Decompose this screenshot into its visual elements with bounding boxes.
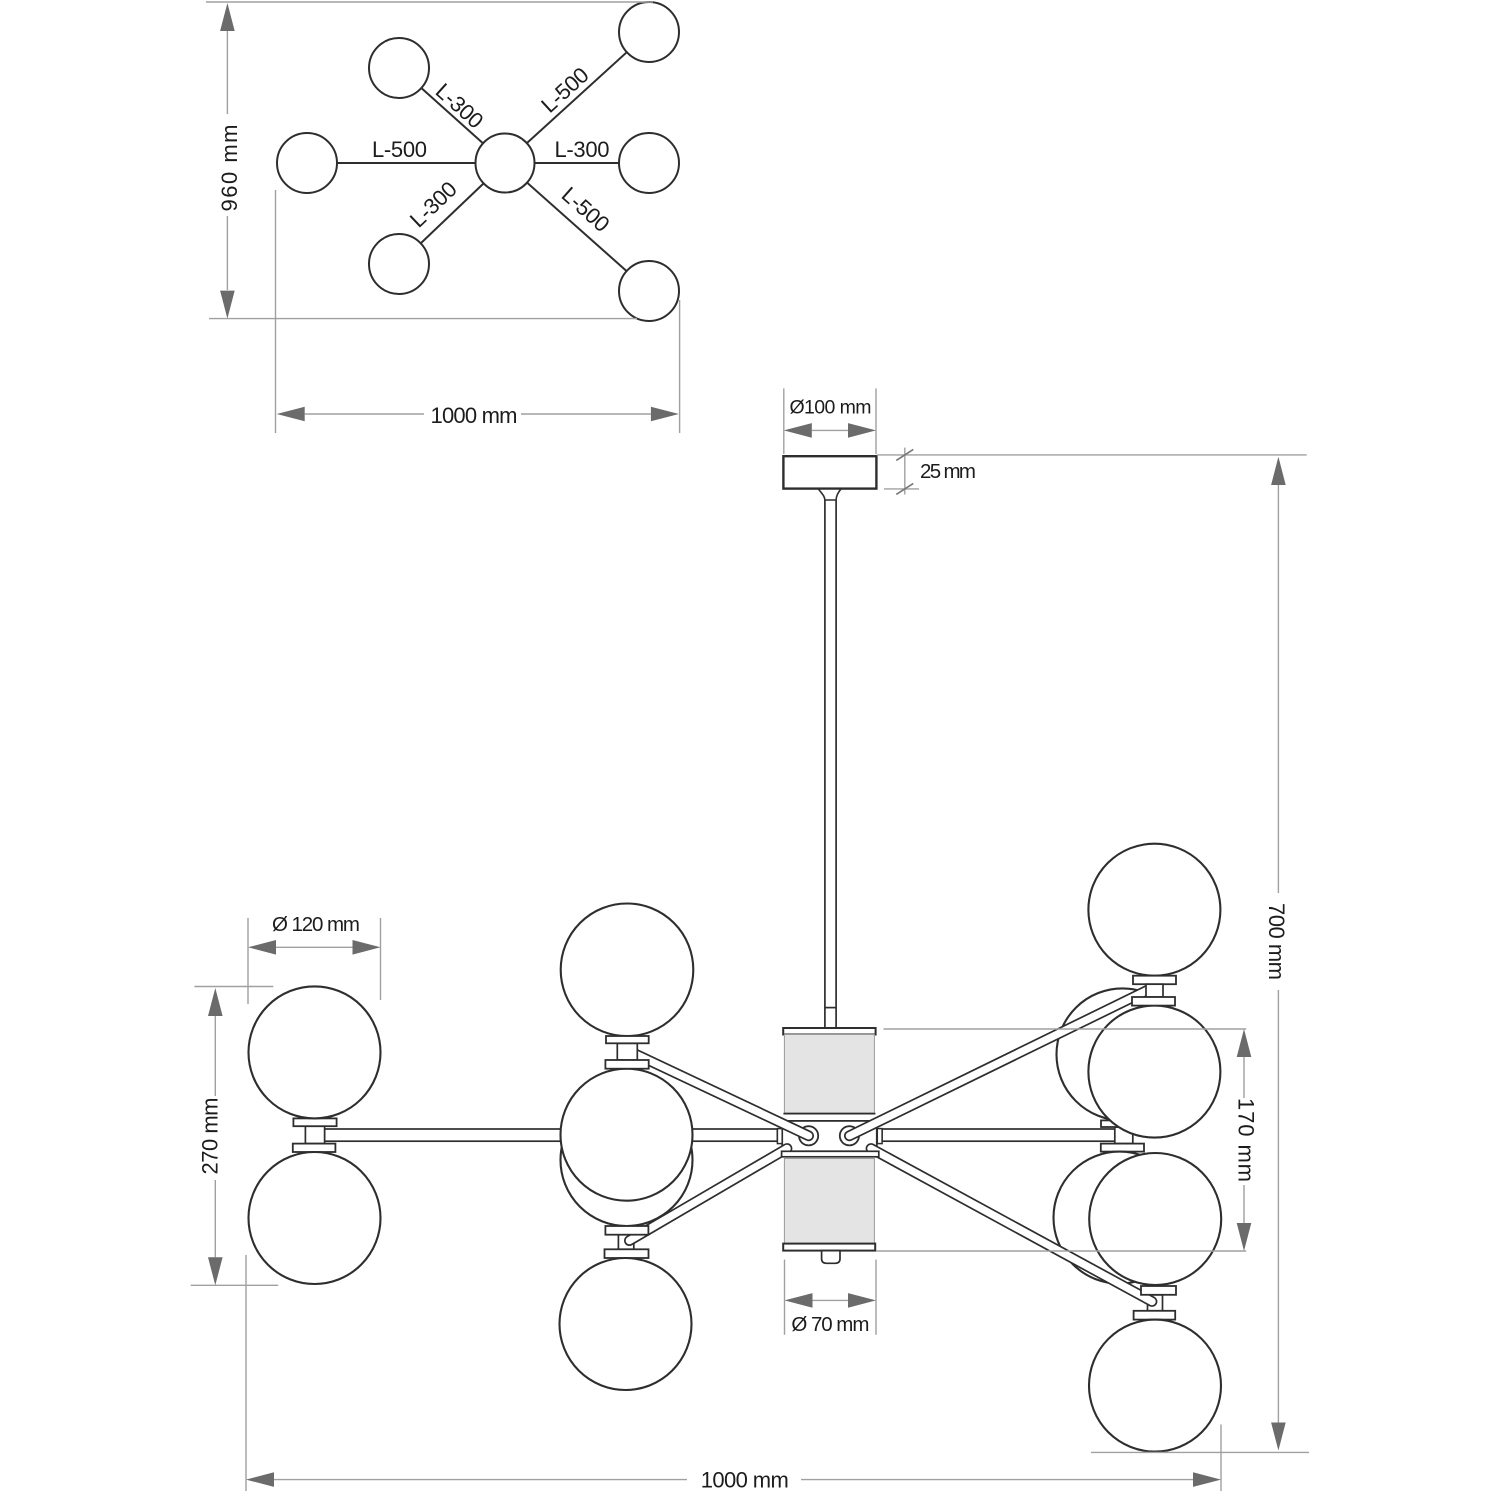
svg-text:960 mm: 960 mm <box>217 125 242 212</box>
svg-text:Ø 120 mm: Ø 120 mm <box>272 913 360 936</box>
svg-text:25 mm: 25 mm <box>920 460 976 483</box>
svg-text:Ø100 mm: Ø100 mm <box>790 397 872 419</box>
svg-text:270 mm: 270 mm <box>198 1098 223 1175</box>
svg-text:L-300: L-300 <box>555 137 610 162</box>
svg-text:170 mm: 170 mm <box>1234 1098 1259 1182</box>
svg-text:L-500: L-500 <box>372 137 427 162</box>
svg-text:Ø 70 mm: Ø 70 mm <box>791 1313 869 1336</box>
svg-text:1000 mm: 1000 mm <box>701 1468 789 1493</box>
svg-text:1000 mm: 1000 mm <box>431 403 518 428</box>
svg-text:700 mm: 700 mm <box>1264 903 1289 980</box>
